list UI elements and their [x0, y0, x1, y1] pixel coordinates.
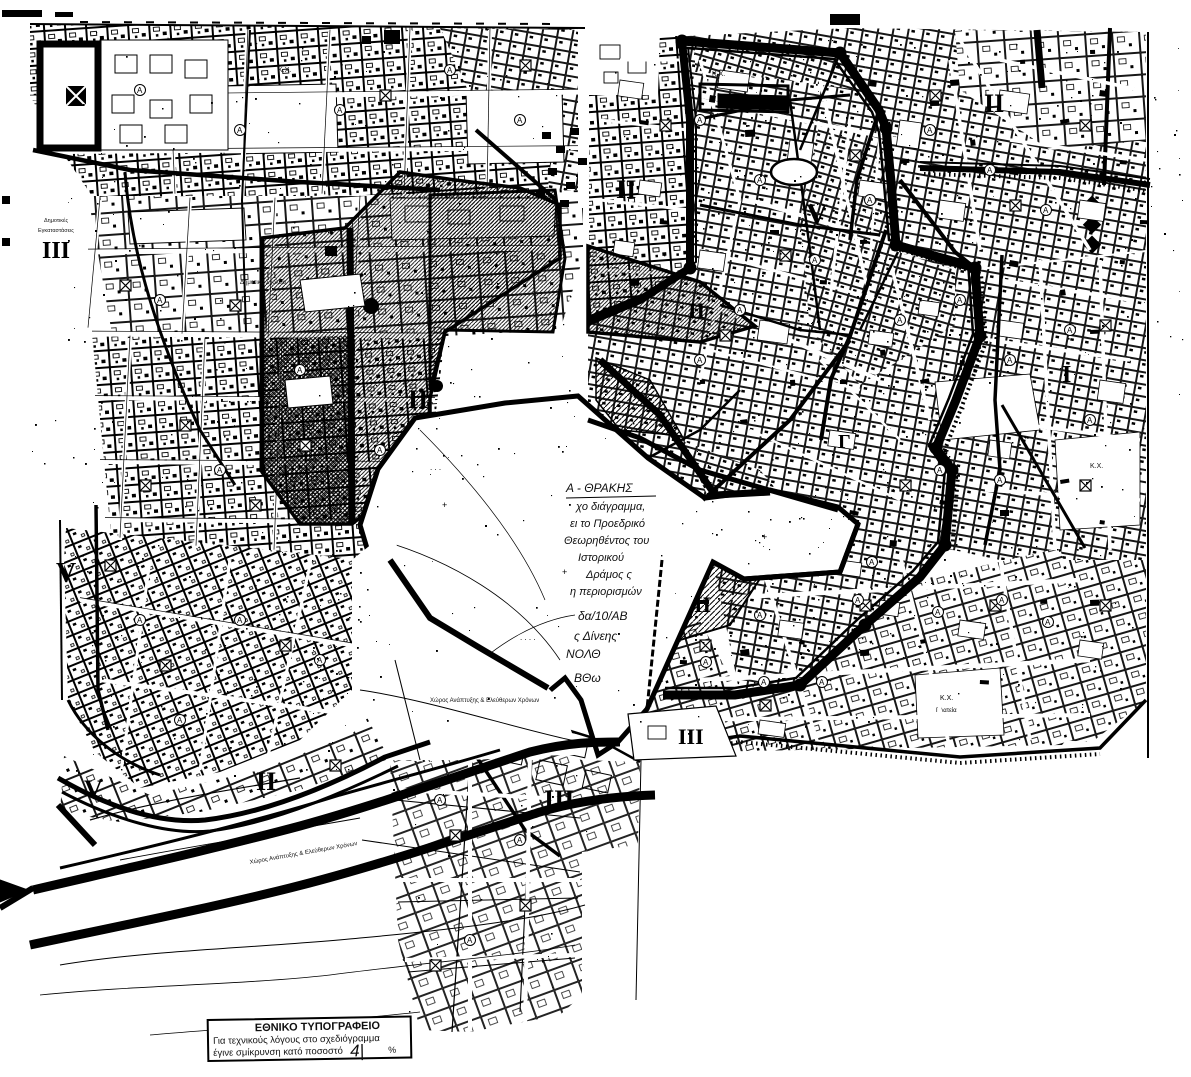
svg-text:A: A — [467, 936, 473, 945]
svg-text:A: A — [217, 466, 223, 475]
svg-text:ει το Προεδρικό: ει το Προεδρικό — [570, 518, 645, 530]
svg-text:A: A — [869, 558, 875, 567]
svg-text:+: + — [442, 500, 447, 510]
svg-text:A: A — [855, 596, 861, 605]
svg-text:A: A — [1007, 356, 1013, 365]
svg-text:A: A — [937, 466, 943, 475]
svg-text:A: A — [703, 658, 709, 667]
svg-text:A: A — [337, 106, 343, 115]
svg-text:A: A — [237, 126, 243, 135]
svg-text:A: A — [997, 476, 1003, 485]
svg-text:V: V — [84, 775, 103, 804]
svg-text:II: II — [408, 385, 428, 414]
svg-text:A: A — [697, 116, 703, 125]
svg-text:Δημοτικό Σχολείο: Δημοτικό Σχολείο — [240, 279, 287, 286]
svg-text:A: A — [1067, 326, 1073, 335]
svg-text:Θεωρηθέντος του: Θεωρηθέντος του — [564, 535, 649, 547]
svg-text:Γ: Γ — [838, 431, 851, 453]
svg-text:II: II — [984, 89, 1004, 118]
svg-text:A: A — [957, 296, 963, 305]
svg-text:A: A — [447, 66, 453, 75]
svg-text:Εγκαταστάσεις: Εγκαταστάσεις — [38, 227, 74, 234]
svg-text:II: II — [688, 298, 705, 323]
svg-text:A: A — [237, 616, 243, 625]
svg-text:ς Δίνεης: ς Δίνεης — [574, 629, 617, 643]
svg-text:A: A — [757, 176, 763, 185]
svg-text:A: A — [812, 256, 818, 265]
svg-text:ΕΘΝΙΚΟ ΤΥΠΟΓΡΑΦΕΙΟ: ΕΘΝΙΚΟ ΤΥΠΟΓΡΑΦΕΙΟ — [255, 1020, 381, 1034]
svg-text:4|: 4| — [350, 1041, 364, 1060]
svg-text:Δημοτικές: Δημοτικές — [44, 217, 68, 224]
svg-text:Α - ΘΡΑΚΗΣ: Α - ΘΡΑΚΗΣ — [565, 481, 633, 495]
svg-text:A: A — [377, 446, 383, 455]
svg-text:έγινε σμίκρυνση κατό ποσοστό: έγινε σμίκρυνση κατό ποσοστό — [213, 1046, 343, 1059]
svg-text:A: A — [157, 296, 163, 305]
svg-text:A: A — [517, 836, 523, 845]
svg-text:A: A — [137, 616, 143, 625]
svg-text:Χώρος Ανάπτυξης & Ελεύθερων Χρ: Χώρος Ανάπτυξης & Ελεύθερων Χρόνων — [430, 697, 539, 704]
svg-text:A: A — [1045, 618, 1051, 627]
svg-text:V: V — [806, 198, 828, 231]
svg-text:A: A — [897, 316, 903, 325]
svg-text:A: A — [761, 678, 767, 687]
svg-text:I: I — [1062, 362, 1071, 388]
svg-text:η περιορισμών: η περιορισμών — [570, 586, 642, 598]
svg-text:III: III — [42, 238, 70, 264]
svg-text:A: A — [999, 596, 1005, 605]
svg-text:. . . .: . . . . — [520, 633, 536, 642]
svg-text:A: A — [757, 611, 763, 620]
svg-text:δα/10/ΑΒ: δα/10/ΑΒ — [578, 609, 628, 623]
svg-text:A: A — [137, 86, 143, 95]
svg-text:A: A — [517, 116, 523, 125]
svg-text:A: A — [737, 306, 743, 315]
svg-text:χο διάγραμμα,: χο διάγραμμα, — [575, 501, 645, 513]
svg-text:II: II — [256, 767, 276, 796]
svg-text:ΝΟΛΘ: ΝΟΛΘ — [566, 647, 601, 661]
svg-text:. . .: . . . — [430, 463, 441, 472]
svg-text:III: III — [544, 785, 574, 814]
svg-text:Ιστορικού: Ιστορικού — [578, 552, 624, 564]
svg-text:A: A — [317, 656, 323, 665]
svg-text:A: A — [177, 716, 183, 725]
svg-text:K.X.: K.X. — [940, 695, 953, 702]
svg-text:II: II — [616, 175, 636, 204]
svg-text:%: % — [388, 1045, 396, 1055]
svg-text:Δράμος ς: Δράμος ς — [585, 569, 633, 581]
svg-text:A: A — [1043, 206, 1049, 215]
svg-text:II: II — [694, 592, 711, 617]
svg-text:K.X.: K.X. — [712, 71, 725, 78]
svg-text:V: V — [56, 558, 76, 589]
svg-text:A: A — [927, 126, 933, 135]
svg-text:A: A — [297, 366, 303, 375]
svg-text:A: A — [819, 678, 825, 687]
svg-text:A: A — [697, 356, 703, 365]
svg-text:A: A — [437, 796, 443, 805]
svg-text:A: A — [935, 608, 941, 617]
svg-text:ΒΘω: ΒΘω — [574, 671, 601, 685]
svg-text:A: A — [987, 166, 993, 175]
svg-text:A: A — [1087, 416, 1093, 425]
svg-text:A: A — [867, 196, 873, 205]
svg-text:+: + — [562, 567, 567, 577]
svg-text:K.X.: K.X. — [278, 67, 291, 74]
svg-text:III: III — [678, 724, 704, 749]
svg-text:+: + — [762, 532, 767, 542]
svg-text:K.X.: K.X. — [1090, 463, 1103, 470]
